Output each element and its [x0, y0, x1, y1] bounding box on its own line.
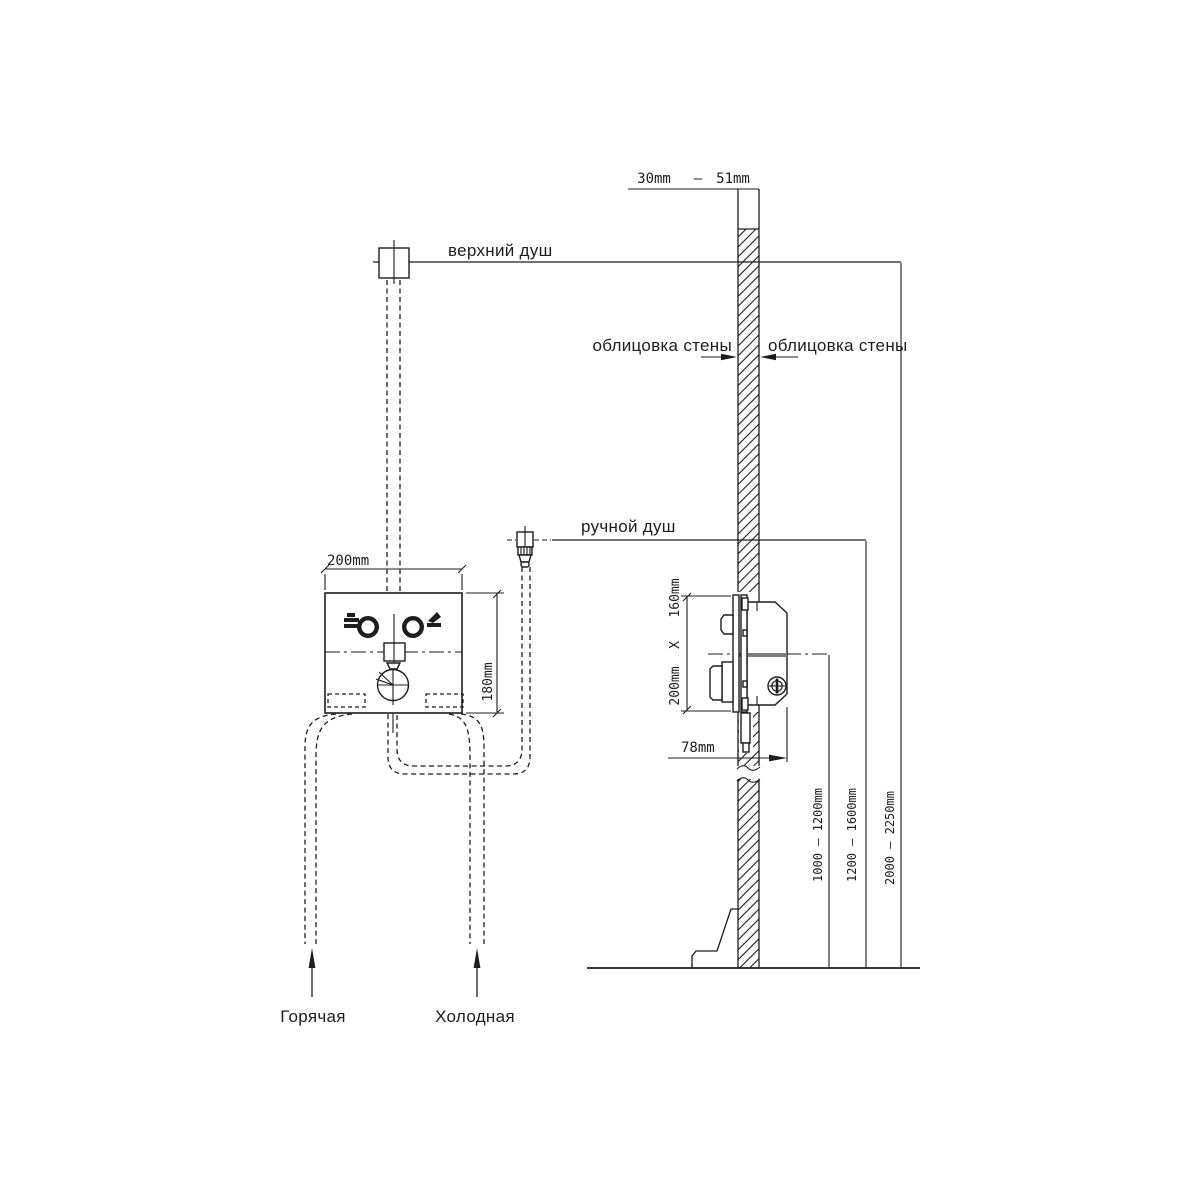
shower-installation-drawing: 30mm — 51mm верхний душ облицовка стены …: [0, 0, 1200, 1200]
wall-thickness-max: 51mm: [716, 171, 750, 187]
hot-supply-label: Горячая: [280, 1007, 346, 1026]
clip-top: [742, 598, 748, 610]
installation-diagram: 30mm — 51mm верхний душ облицовка стены …: [0, 0, 1200, 1200]
overhead-shower-label: верхний душ: [448, 241, 553, 260]
box-width-text: 200mm: [327, 553, 369, 569]
plate-hole-top: [743, 630, 747, 636]
wall-thickness-separator: —: [694, 171, 703, 187]
hand-shower-height-range-text: 1200 — 1600mm: [845, 788, 859, 882]
wall-thickness-min: 30mm: [637, 171, 671, 187]
screw-icon: [768, 677, 786, 695]
back-plate: [741, 595, 747, 712]
mixer-height-range-text: 1000 — 1200mm: [811, 788, 825, 882]
cold-supply-label: Холодная: [435, 1007, 515, 1026]
escutcheon-plate: [733, 595, 739, 712]
clip-bottom: [742, 698, 748, 710]
handle-cap-side: [710, 666, 722, 700]
rough-in-separator-text: X: [668, 641, 683, 649]
hand-shower-label: ручной душ: [581, 517, 676, 536]
depth-text: 78mm: [681, 740, 715, 756]
box-height-text: 180mm: [481, 662, 496, 701]
wall-thickness-dimension: 30mm — 51mm: [628, 171, 759, 189]
plate-hole-bottom: [743, 681, 747, 687]
outlet-elbow: [741, 713, 750, 752]
top-shower-height-range-text: 2000 — 2250mm: [883, 791, 897, 885]
handle-stem-side: [722, 662, 733, 702]
wall-section: [734, 189, 762, 968]
wall-cladding-label-left: облицовка стены: [592, 336, 732, 355]
diverter-knob-side: [721, 615, 733, 634]
rough-in-width-text: 200mm: [668, 666, 683, 705]
rough-in-height-text: 160mm: [668, 578, 683, 617]
wall-cladding-label-right: облицовка стены: [768, 336, 908, 355]
canvas-background: [0, 0, 1200, 1200]
